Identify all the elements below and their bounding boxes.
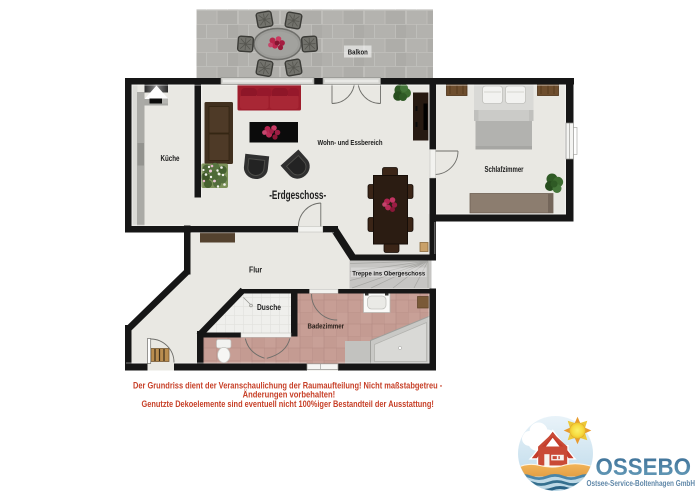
svg-text:Treppe ins Obergeschoss: Treppe ins Obergeschoss <box>352 271 425 278</box>
svg-text:Balkon: Balkon <box>348 47 368 56</box>
svg-text:Badezimmer: Badezimmer <box>308 322 345 331</box>
svg-text:Genutzte Dekoelemente sind eve: Genutzte Dekoelemente sind eventuell nic… <box>142 399 434 410</box>
svg-text:-Erdgeschoss-: -Erdgeschoss- <box>269 190 326 202</box>
svg-text:Ostsee-Service-Boltenhagen Gmb: Ostsee-Service-Boltenhagen GmbH <box>587 478 696 488</box>
svg-text:Schlafzimmer: Schlafzimmer <box>485 164 525 174</box>
svg-text:Dusche: Dusche <box>257 303 281 312</box>
svg-text:Wohn- und Essbereich: Wohn- und Essbereich <box>318 138 383 147</box>
svg-text:Flur: Flur <box>249 266 262 275</box>
svg-text:Küche: Küche <box>161 154 180 163</box>
